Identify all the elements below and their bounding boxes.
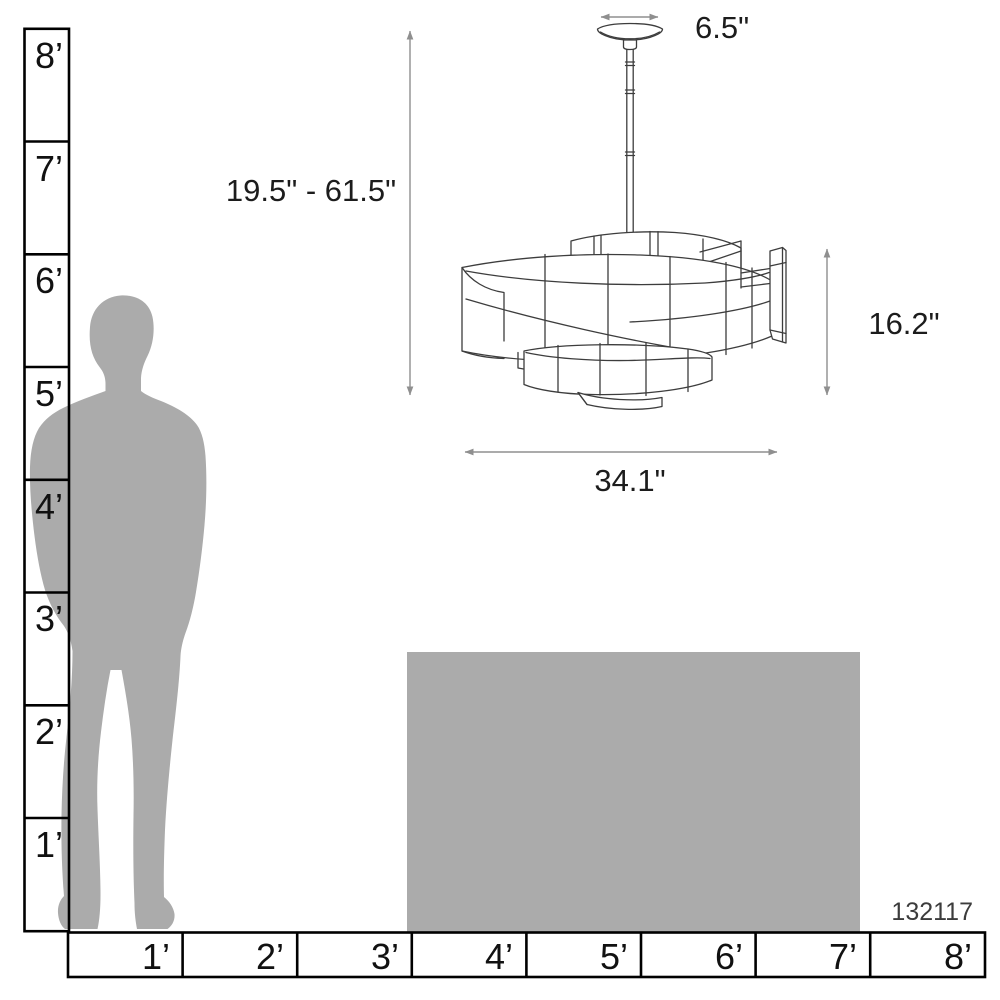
fixture-height-label: 16.2" [868, 306, 939, 341]
vertical-ruler-label-1ft: 1’ [35, 824, 63, 865]
height-range-label: 19.5" - 61.5" [226, 173, 396, 208]
product-code: 132117 [891, 898, 973, 926]
vertical-ruler-label-6ft: 6’ [35, 260, 63, 301]
horizontal-ruler-label-4ft: 4’ [485, 936, 513, 977]
fixture-width-label: 34.1" [594, 463, 665, 498]
horizontal-ruler-label-2ft: 2’ [256, 936, 284, 977]
table-silhouette [407, 652, 860, 932]
vertical-ruler-label-7ft: 7’ [35, 148, 63, 189]
hang-rod [626, 50, 635, 251]
horizontal-ruler-label-1ft: 1’ [142, 936, 170, 977]
vertical-ruler-label-3ft: 3’ [35, 598, 63, 639]
vertical-ruler-label-8ft: 8’ [35, 35, 63, 76]
horizontal-ruler-label-3ft: 3’ [371, 936, 399, 977]
horizontal-floor-ruler: 1’ 2’ 3’ 4’ 5’ 6’ 7’ 8’ [68, 933, 985, 978]
horizontal-ruler-label-8ft: 8’ [944, 936, 972, 977]
vertical-ruler-label-5ft: 5’ [35, 373, 63, 414]
canopy-width-label: 6.5" [695, 10, 749, 45]
horizontal-ruler-label-5ft: 5’ [600, 936, 628, 977]
dimension-diagram-canvas: 8’ 7’ 6’ 5’ 4’ 3’ 2’ 1’ 1’ 2’ 3’ 4’ 5’ 6… [0, 0, 1000, 1000]
lower-ribbon [524, 343, 712, 396]
horizontal-ruler-label-7ft: 7’ [829, 936, 857, 977]
ceiling-canopy [598, 24, 663, 50]
dimension-diagram: 8’ 7’ 6’ 5’ 4’ 3’ 2’ 1’ 1’ 2’ 3’ 4’ 5’ 6… [0, 0, 1000, 1000]
vertical-ruler-label-2ft: 2’ [35, 711, 63, 752]
chandelier-line-drawing [462, 24, 786, 410]
horizontal-ruler-label-6ft: 6’ [715, 936, 743, 977]
vertical-ruler-label-4ft: 4’ [35, 486, 63, 527]
